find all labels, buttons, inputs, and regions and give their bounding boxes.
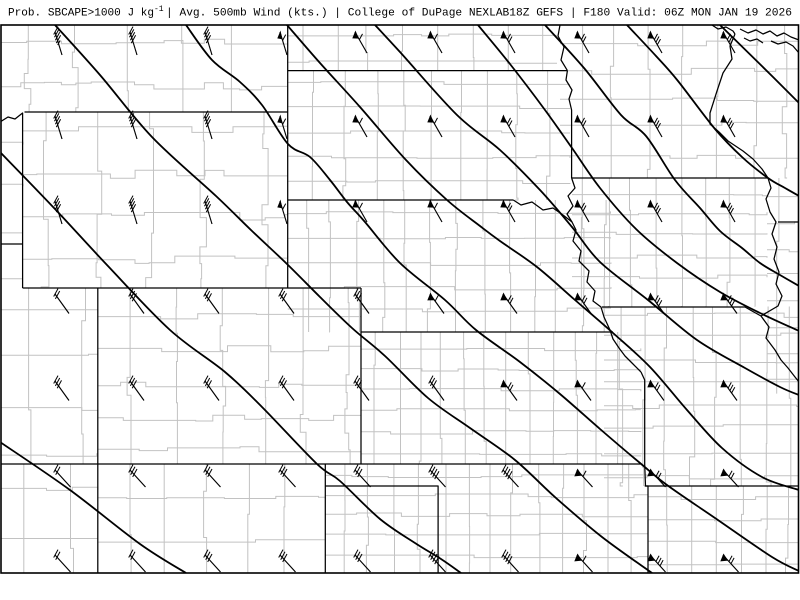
svg-text:-1: -1	[154, 5, 164, 14]
svg-text:Prob. SBCAPE>1000 J kg: Prob. SBCAPE>1000 J kg	[8, 8, 154, 20]
svg-text:| Avg. 500mb Wind (kts.) | Col: | Avg. 500mb Wind (kts.) | College of Du…	[166, 8, 792, 20]
